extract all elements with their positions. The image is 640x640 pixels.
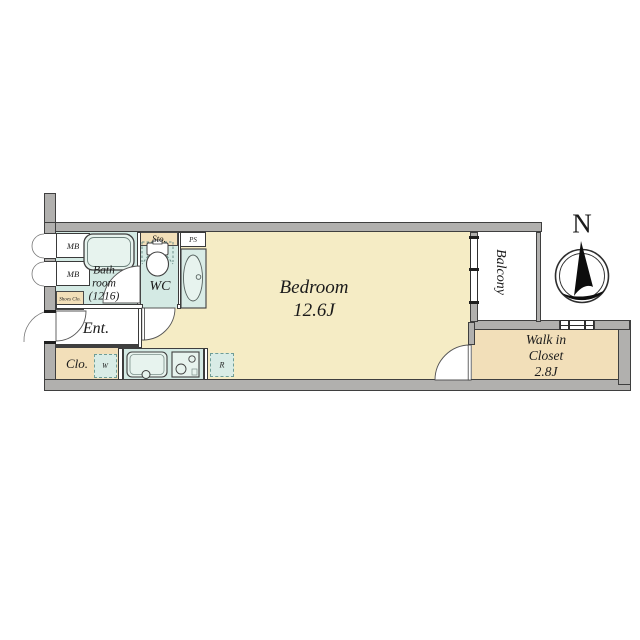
wall-bottom bbox=[44, 379, 631, 391]
wall-left-2 bbox=[44, 258, 56, 262]
wall-left-3 bbox=[44, 286, 56, 312]
wall-wic-top-a bbox=[472, 320, 560, 330]
partition-basin-south-stub bbox=[177, 304, 181, 309]
washer-space-label: W bbox=[102, 362, 108, 370]
wall-left-1 bbox=[44, 222, 56, 234]
wic-window bbox=[560, 320, 594, 330]
partition-bath-wc bbox=[137, 232, 141, 308]
bedroom-label: Bedroom 12.6J bbox=[280, 276, 349, 322]
bedroom-name: Bedroom bbox=[280, 276, 349, 299]
kitchen-counter bbox=[123, 348, 204, 380]
wall-balcony-divider-bottom bbox=[470, 303, 478, 322]
meter-box-doors-icon bbox=[32, 234, 44, 286]
pipe-space-label: PS bbox=[189, 236, 197, 244]
balcony-window-cap-top bbox=[469, 236, 479, 239]
bedroom-size: 12.6J bbox=[280, 299, 349, 322]
bathroom-label: Bath room (1216) bbox=[89, 265, 120, 304]
floor-plan: Bedroom 12.6J Bath room (1216) WC Ent. C… bbox=[0, 0, 640, 640]
partition-entrance-right bbox=[138, 308, 142, 348]
partition-bath-south bbox=[56, 304, 143, 309]
wall-top bbox=[44, 222, 542, 232]
closet-label: Clo. bbox=[66, 356, 88, 372]
wall-wic-left-stub bbox=[468, 322, 475, 345]
balcony-window-cap-bottom bbox=[469, 301, 479, 304]
wc-label: WC bbox=[150, 279, 171, 295]
partition-closet-kitchen bbox=[118, 348, 123, 380]
meter-box-1-label: MB bbox=[67, 241, 79, 251]
balcony-label: Balcony bbox=[492, 249, 508, 295]
storage-label: Sto. bbox=[152, 234, 166, 244]
entrance-frame-top bbox=[44, 310, 56, 313]
wic-label: Walk in Closet 2.8J bbox=[526, 332, 566, 380]
wall-wic-top-b bbox=[594, 320, 630, 330]
meter-box-2-label: MB bbox=[67, 269, 79, 279]
balcony-railing bbox=[536, 232, 541, 322]
balcony-window-rail bbox=[469, 268, 479, 271]
entrance-label: Ent. bbox=[83, 320, 109, 338]
room-wc-floor bbox=[141, 246, 178, 308]
wall-top-left-stub bbox=[44, 193, 56, 224]
wall-entrance-south bbox=[56, 344, 141, 348]
fridge-space-label: R bbox=[220, 361, 225, 370]
entrance-frame-bottom bbox=[44, 341, 56, 344]
north-label: N bbox=[572, 209, 592, 240]
partition-wc-basin bbox=[178, 232, 181, 308]
wall-left-4 bbox=[44, 343, 56, 383]
north-compass-icon bbox=[556, 241, 609, 303]
shoes-closet-label: Shoes Clo. bbox=[59, 298, 80, 303]
partition-kitchen-right bbox=[204, 348, 208, 380]
